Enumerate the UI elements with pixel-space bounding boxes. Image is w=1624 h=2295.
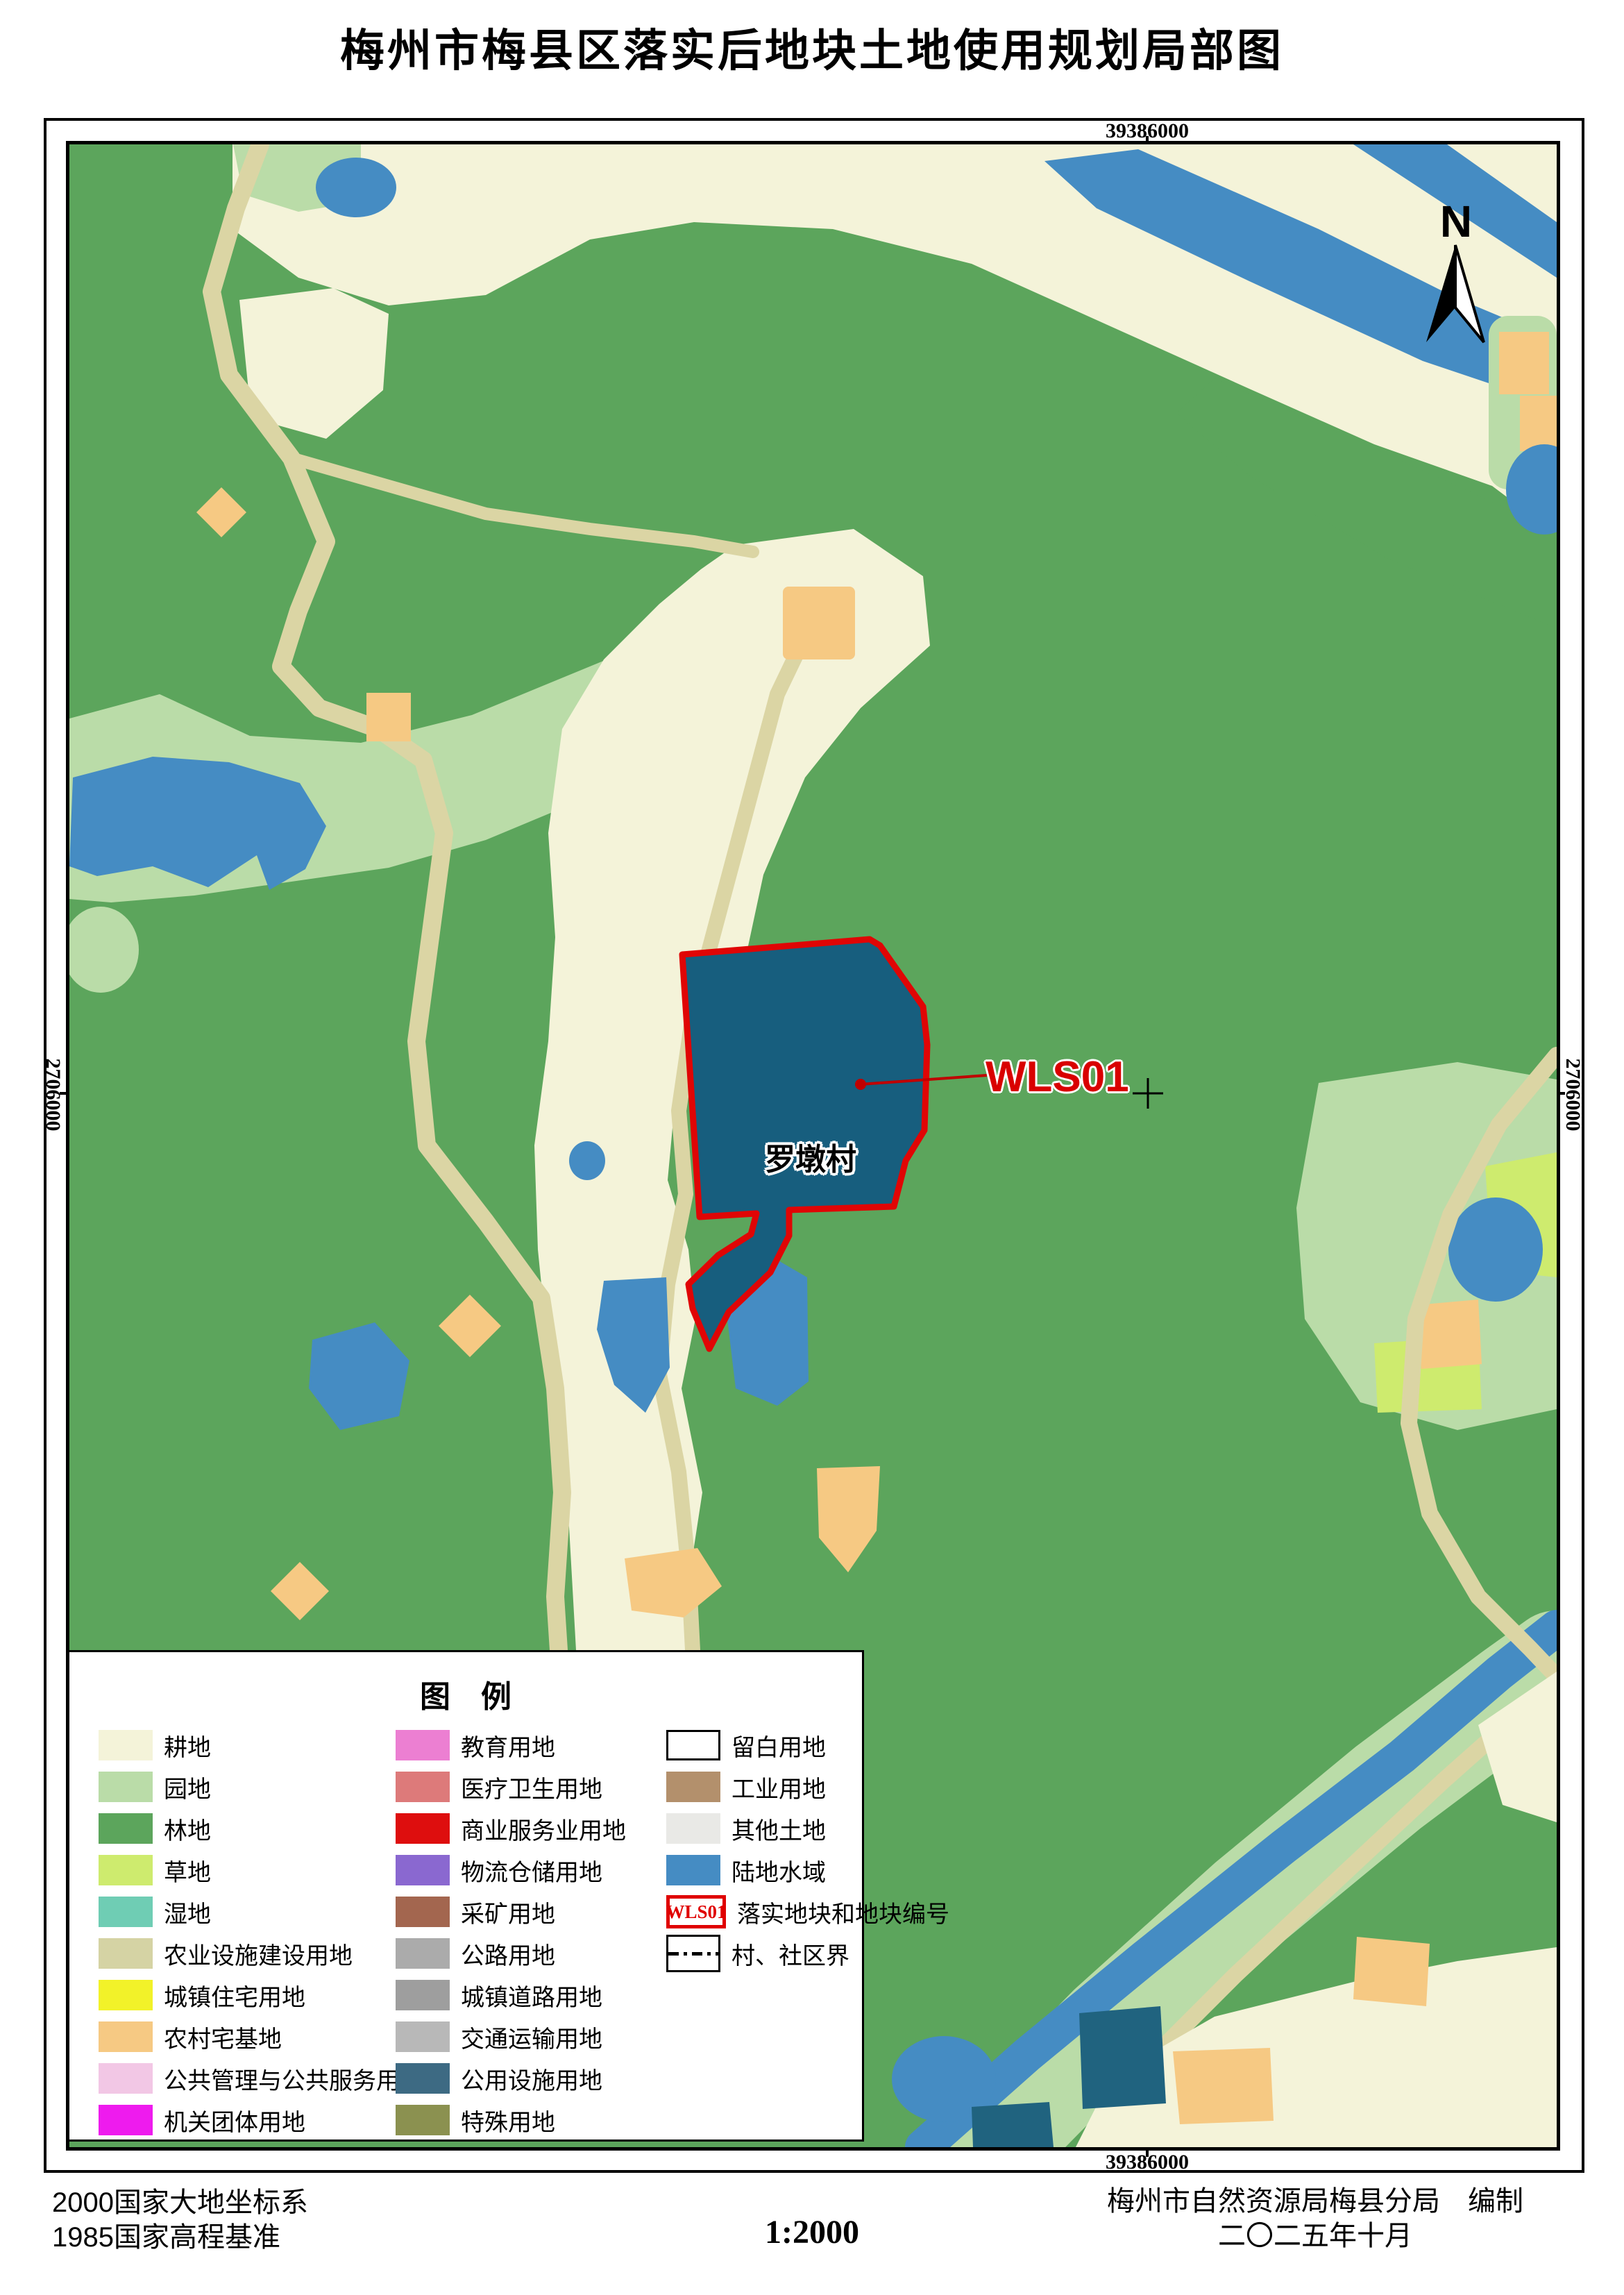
legend-item: 留白用地 xyxy=(666,1724,861,1766)
housing-b xyxy=(366,693,411,741)
legend-swatch-icon xyxy=(396,1938,450,1969)
legend-item: 工业用地 xyxy=(666,1766,861,1808)
legend-item-label: 城镇道路用地 xyxy=(461,1978,602,2012)
legend-swatch-icon xyxy=(396,1897,450,1927)
legend-item: 机关团体用地 xyxy=(99,2099,376,2141)
legend-swatch-icon xyxy=(396,2105,450,2135)
legend-item-label: 公用设施用地 xyxy=(461,2062,602,2096)
legend-box: 图 例 耕地园地林地草地湿地农业设施建设用地城镇住宅用地农村宅基地公共管理与公共… xyxy=(67,1650,864,2142)
legend-item-label: 农村宅基地 xyxy=(164,2020,282,2054)
legend-item-label: 交通运输用地 xyxy=(461,2020,602,2054)
housing-k xyxy=(1173,2048,1274,2124)
legend-swatch-icon xyxy=(396,1730,450,1760)
legend-item-label: 落实地块和地块编号 xyxy=(737,1895,949,1929)
coordinate-bottom: 39386000 xyxy=(1078,2151,1217,2174)
legend-item: 其他土地 xyxy=(666,1808,861,1849)
pond-top xyxy=(316,158,396,217)
legend-item-label: 林地 xyxy=(164,1812,211,1846)
legend-swatch-icon xyxy=(396,1980,450,2010)
legend-item: WLS01落实地块和地块编号 xyxy=(666,1891,861,1933)
legend-item: 农业设施建设用地 xyxy=(99,1933,376,1974)
legend-item-label: 物流仓储用地 xyxy=(461,1853,602,1888)
legend-item-label: 教育用地 xyxy=(461,1729,555,1763)
legend-item-label: 医疗卫生用地 xyxy=(461,1770,602,1804)
legend-item-label: 采矿用地 xyxy=(461,1895,555,1929)
legend-swatch-icon xyxy=(396,1772,450,1802)
legend-item-label: 村、社区界 xyxy=(731,1937,849,1971)
legend-swatch-icon xyxy=(666,1813,720,1844)
legend-item-label: 城镇住宅用地 xyxy=(164,1978,305,2012)
legend-swatch-icon xyxy=(396,1813,450,1844)
coordinate-top: 39386000 xyxy=(1078,119,1217,143)
legend-item: 特殊用地 xyxy=(396,2099,659,2141)
legend-item: 医疗卫生用地 xyxy=(396,1766,659,1808)
legend-item: 教育用地 xyxy=(396,1724,659,1766)
legend-swatch-icon xyxy=(666,1772,720,1802)
legend-item: 城镇住宅用地 xyxy=(99,1974,376,2016)
legend-column-1: 耕地园地林地草地湿地农业设施建设用地城镇住宅用地农村宅基地公共管理与公共服务用地… xyxy=(99,1724,376,2141)
publish-date: 二〇二五年十月 xyxy=(1041,2213,1589,2253)
legend-item: 园地 xyxy=(99,1766,376,1808)
legend-item-label: 工业用地 xyxy=(731,1770,826,1804)
legend-item: 物流仓储用地 xyxy=(396,1849,659,1891)
legend-item-label: 耕地 xyxy=(164,1729,211,1763)
legend-swatch-icon xyxy=(99,2021,153,2052)
housing-right-1 xyxy=(1499,332,1549,394)
legend-item-label: 公路用地 xyxy=(461,1937,555,1971)
legend-item: 城镇道路用地 xyxy=(396,1974,659,2016)
utility-blob-1 xyxy=(1079,2006,1166,2109)
village-boundary-line-icon xyxy=(668,1952,718,1956)
legend-swatch-icon xyxy=(99,1730,153,1760)
legend-swatch-icon xyxy=(99,1855,153,1885)
datum-line-2: 1985国家高程基准 xyxy=(52,2214,280,2255)
legend-item-label: 商业服务业用地 xyxy=(461,1812,626,1846)
coordinate-right: 2706000 xyxy=(1561,1059,1584,1132)
legend-swatch-icon: WLS01 xyxy=(666,1895,726,1928)
legend-swatch-icon xyxy=(99,1938,153,1969)
legend-column-3: 留白用地工业用地其他土地陆地水域WLS01落实地块和地块编号村、社区界 xyxy=(666,1724,861,1974)
housing-j xyxy=(1353,1937,1430,2006)
legend-item: 采矿用地 xyxy=(396,1891,659,1933)
legend-swatch-icon xyxy=(396,2021,450,2052)
legend-item-label: 机关团体用地 xyxy=(164,2103,305,2137)
legend-item: 公共管理与公共服务用地 xyxy=(99,2058,376,2099)
legend-item: 陆地水域 xyxy=(666,1849,861,1891)
legend-item: 公用设施用地 xyxy=(396,2058,659,2099)
legend-item-label: 陆地水域 xyxy=(731,1853,826,1888)
utility-blob-2 xyxy=(972,2102,1054,2147)
legend-swatch-icon xyxy=(666,1855,720,1885)
legend-item-label: 草地 xyxy=(164,1853,211,1888)
legend-item-label: 公共管理与公共服务用地 xyxy=(164,2062,423,2096)
legend-swatch-icon xyxy=(99,1980,153,2010)
legend-swatch-icon xyxy=(99,1813,153,1844)
legend-title: 图 例 xyxy=(69,1672,862,1716)
housing-right-2 xyxy=(1520,396,1557,451)
legend-item: 耕地 xyxy=(99,1724,376,1766)
legend-item: 农村宅基地 xyxy=(99,2016,376,2058)
housing-c xyxy=(783,587,855,659)
village-name-label: 罗墩村 xyxy=(741,1134,880,1179)
page-title: 梅州市梅县区落实后地块土地使用规划局部图 xyxy=(0,15,1624,79)
legend-item-label: 其他土地 xyxy=(731,1812,826,1846)
legend-item: 公路用地 xyxy=(396,1933,659,1974)
legend-item-label: 特殊用地 xyxy=(461,2103,555,2137)
coordinate-left: 2706000 xyxy=(41,1059,65,1132)
legend-swatch-icon xyxy=(666,1730,720,1760)
legend-swatch-icon xyxy=(666,1935,720,1972)
legend-item: 村、社区界 xyxy=(666,1933,861,1974)
legend-item-label: 湿地 xyxy=(164,1895,211,1929)
north-label: N xyxy=(1429,196,1483,247)
legend-swatch-icon xyxy=(99,2105,153,2135)
parcel-code-label: WLS01 xyxy=(986,1052,1129,1102)
legend-swatch-icon xyxy=(396,2063,450,2094)
legend-item: 林地 xyxy=(99,1808,376,1849)
legend-swatch-icon xyxy=(99,2063,153,2094)
legend-item: 湿地 xyxy=(99,1891,376,1933)
map-scale: 1:2000 xyxy=(708,2213,916,2251)
legend-item: 草地 xyxy=(99,1849,376,1891)
legend-item: 交通运输用地 xyxy=(396,2016,659,2058)
legend-swatch-icon xyxy=(396,1855,450,1885)
pond-right-mid xyxy=(1448,1197,1543,1302)
legend-item: 商业服务业用地 xyxy=(396,1808,659,1849)
legend-column-2: 教育用地医疗卫生用地商业服务业用地物流仓储用地采矿用地公路用地城镇道路用地交通运… xyxy=(396,1724,659,2141)
legend-item-label: 农业设施建设用地 xyxy=(164,1937,353,1971)
pond-small-mid xyxy=(569,1141,605,1180)
legend-item-label: 留白用地 xyxy=(731,1729,826,1763)
legend-item-label: 园地 xyxy=(164,1770,211,1804)
legend-swatch-icon xyxy=(99,1772,153,1802)
legend-swatch-icon xyxy=(99,1897,153,1927)
